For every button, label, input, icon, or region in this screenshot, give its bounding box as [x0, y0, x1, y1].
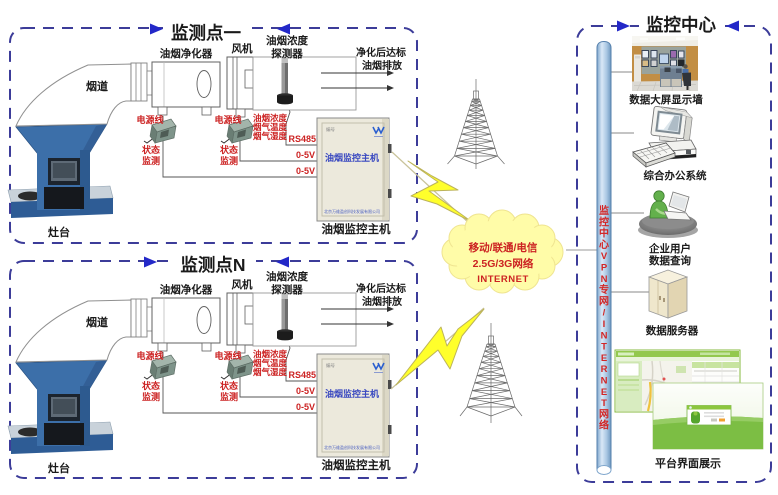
svg-text:状态: 状态 — [220, 144, 238, 155]
svg-text:油烟监控主机: 油烟监控主机 — [322, 458, 391, 472]
svg-text:N: N — [601, 274, 608, 285]
svg-text:0-5V: 0-5V — [296, 386, 315, 396]
svg-text:2.5G/3G网络: 2.5G/3G网络 — [473, 257, 534, 270]
svg-text:网: 网 — [599, 408, 609, 420]
svg-text:心: 心 — [599, 239, 609, 251]
svg-text:N: N — [601, 330, 608, 341]
svg-text:监测: 监测 — [220, 155, 238, 166]
svg-text:监测点N: 监测点N — [180, 255, 245, 275]
svg-text:0-5V: 0-5V — [296, 402, 315, 412]
svg-text:网: 网 — [599, 295, 609, 307]
svg-text:风机: 风机 — [232, 278, 253, 291]
svg-text:RS485: RS485 — [288, 370, 316, 380]
svg-text:监测: 监测 — [142, 155, 160, 166]
svg-text:平台界面展示: 平台界面展示 — [655, 456, 721, 470]
svg-text:/: / — [603, 308, 606, 319]
svg-text:烟气湿度: 烟气湿度 — [253, 367, 288, 377]
svg-text:E: E — [601, 353, 607, 364]
svg-text:烟道: 烟道 — [86, 79, 108, 93]
svg-text:灶台: 灶台 — [48, 461, 70, 475]
svg-text:电源线: 电源线 — [214, 350, 241, 361]
svg-text:监测: 监测 — [142, 391, 160, 402]
svg-text:净化后达标: 净化后达标 — [356, 46, 406, 59]
svg-text:专: 专 — [599, 283, 609, 296]
svg-text:风机: 风机 — [232, 42, 253, 55]
svg-text:探测器: 探测器 — [271, 283, 303, 296]
svg-text:E: E — [601, 387, 607, 398]
svg-text:油烟监控主机: 油烟监控主机 — [325, 388, 379, 399]
svg-text:INTERNET: INTERNET — [477, 274, 529, 285]
svg-text:N: N — [601, 376, 608, 387]
svg-text:监测: 监测 — [220, 391, 238, 402]
svg-text:油烟排放: 油烟排放 — [362, 295, 403, 308]
svg-text:电源线: 电源线 — [214, 114, 241, 125]
svg-text:控: 控 — [599, 215, 609, 228]
svg-text:北京万维盈创科技发展有限公司: 北京万维盈创科技发展有限公司 — [324, 444, 380, 450]
svg-text:油烟浓度: 油烟浓度 — [266, 34, 308, 47]
svg-text:T: T — [601, 342, 607, 353]
svg-text:中: 中 — [599, 227, 609, 240]
svg-text:0-5V: 0-5V — [296, 150, 315, 160]
svg-text:灶台: 灶台 — [48, 225, 70, 239]
svg-text:企业用户: 企业用户 — [648, 242, 691, 255]
svg-text:电源线: 电源线 — [136, 350, 163, 361]
svg-text:烟道: 烟道 — [86, 315, 108, 329]
svg-text:状态: 状态 — [142, 380, 160, 391]
svg-text:监控中心: 监控中心 — [646, 15, 716, 35]
svg-text:P: P — [601, 263, 608, 274]
svg-text:V: V — [601, 251, 608, 262]
svg-text:净化后达标: 净化后达标 — [356, 282, 406, 295]
svg-text:烟气湿度: 烟气湿度 — [253, 131, 288, 141]
svg-text:监测点一: 监测点一 — [171, 23, 241, 43]
svg-text:油烟净化器: 油烟净化器 — [160, 283, 213, 296]
svg-text:RS485: RS485 — [288, 134, 316, 144]
svg-text:0-5V: 0-5V — [296, 166, 315, 176]
svg-text:络: 络 — [599, 419, 609, 432]
svg-text:状态: 状态 — [142, 144, 160, 155]
svg-text:电源线: 电源线 — [136, 114, 163, 125]
svg-text:数据查询: 数据查询 — [648, 254, 691, 267]
svg-text:监: 监 — [599, 204, 609, 217]
svg-text:数据大屏显示墙: 数据大屏显示墙 — [628, 93, 703, 106]
svg-text:综合办公系统: 综合办公系统 — [644, 169, 707, 182]
svg-text:油烟净化器: 油烟净化器 — [160, 47, 213, 60]
svg-text:移动/联通/电信: 移动/联通/电信 — [469, 241, 538, 254]
svg-text:状态: 状态 — [220, 380, 238, 391]
svg-text:T: T — [601, 398, 607, 409]
svg-text:R: R — [601, 364, 608, 375]
svg-text:I: I — [603, 319, 606, 330]
svg-text:探测器: 探测器 — [271, 47, 303, 60]
svg-text:油烟监控主机: 油烟监控主机 — [325, 152, 379, 163]
svg-text:编号: 编号 — [326, 362, 335, 369]
svg-text:数据服务器: 数据服务器 — [645, 324, 699, 337]
svg-text:油烟浓度: 油烟浓度 — [266, 270, 308, 283]
svg-text:油烟监控主机: 油烟监控主机 — [322, 222, 391, 236]
svg-text:编号: 编号 — [326, 126, 335, 133]
svg-text:北京万维盈创科技发展有限公司: 北京万维盈创科技发展有限公司 — [324, 208, 380, 214]
svg-text:油烟排放: 油烟排放 — [362, 59, 403, 72]
